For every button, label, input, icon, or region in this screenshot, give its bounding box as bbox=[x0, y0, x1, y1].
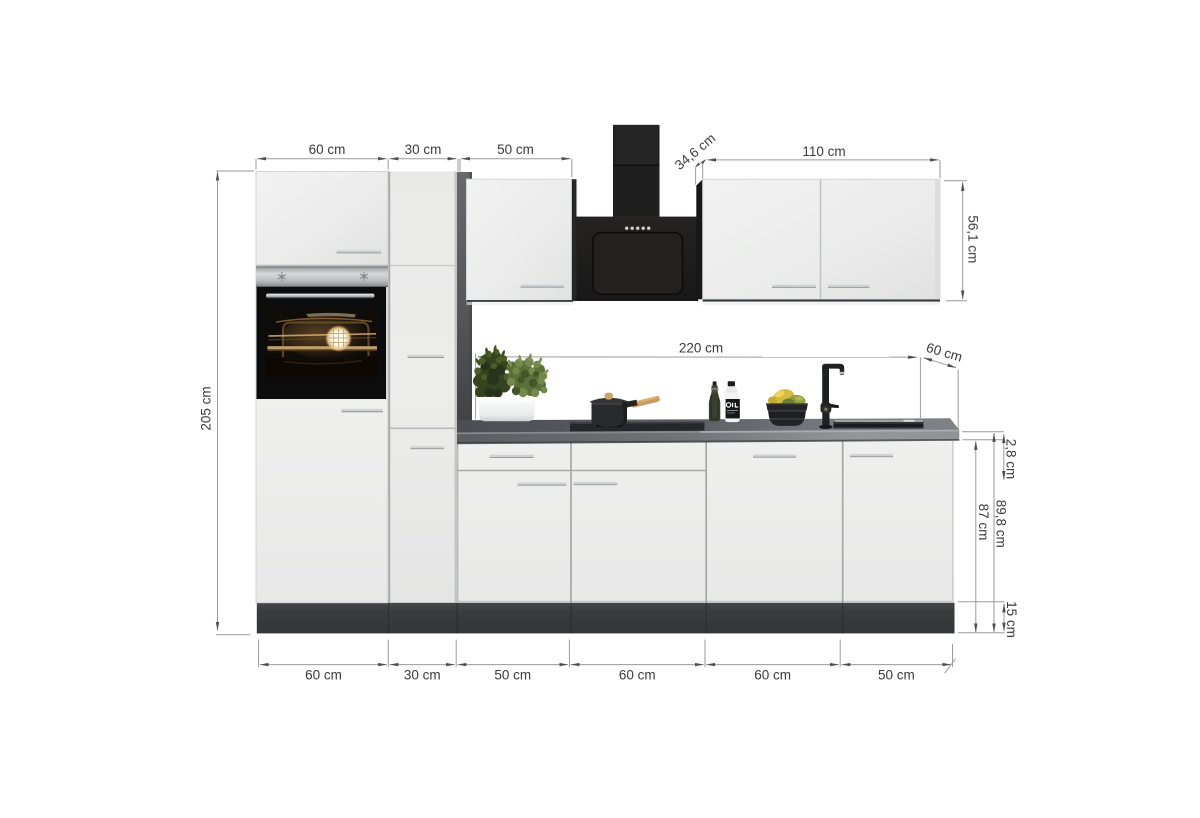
svg-text:60 cm: 60 cm bbox=[309, 142, 346, 157]
svg-text:56,1 cm: 56,1 cm bbox=[966, 215, 981, 263]
svg-text:50 cm: 50 cm bbox=[878, 668, 915, 683]
svg-text:15 cm: 15 cm bbox=[1004, 601, 1019, 638]
svg-text:50 cm: 50 cm bbox=[494, 668, 531, 683]
svg-text:50 cm: 50 cm bbox=[497, 142, 534, 157]
svg-text:87 cm: 87 cm bbox=[976, 504, 991, 541]
svg-text:110 cm: 110 cm bbox=[802, 144, 845, 159]
svg-text:220 cm: 220 cm bbox=[679, 341, 723, 356]
svg-text:2,8 cm: 2,8 cm bbox=[1003, 439, 1018, 480]
svg-text:60 cm: 60 cm bbox=[305, 668, 342, 683]
svg-text:60 cm: 60 cm bbox=[619, 668, 656, 683]
svg-text:30 cm: 30 cm bbox=[405, 142, 442, 157]
svg-text:60 cm: 60 cm bbox=[754, 668, 791, 683]
svg-text:205 cm: 205 cm bbox=[199, 386, 214, 430]
svg-text:30 cm: 30 cm bbox=[404, 668, 441, 683]
svg-text:89,8 cm: 89,8 cm bbox=[993, 500, 1008, 548]
